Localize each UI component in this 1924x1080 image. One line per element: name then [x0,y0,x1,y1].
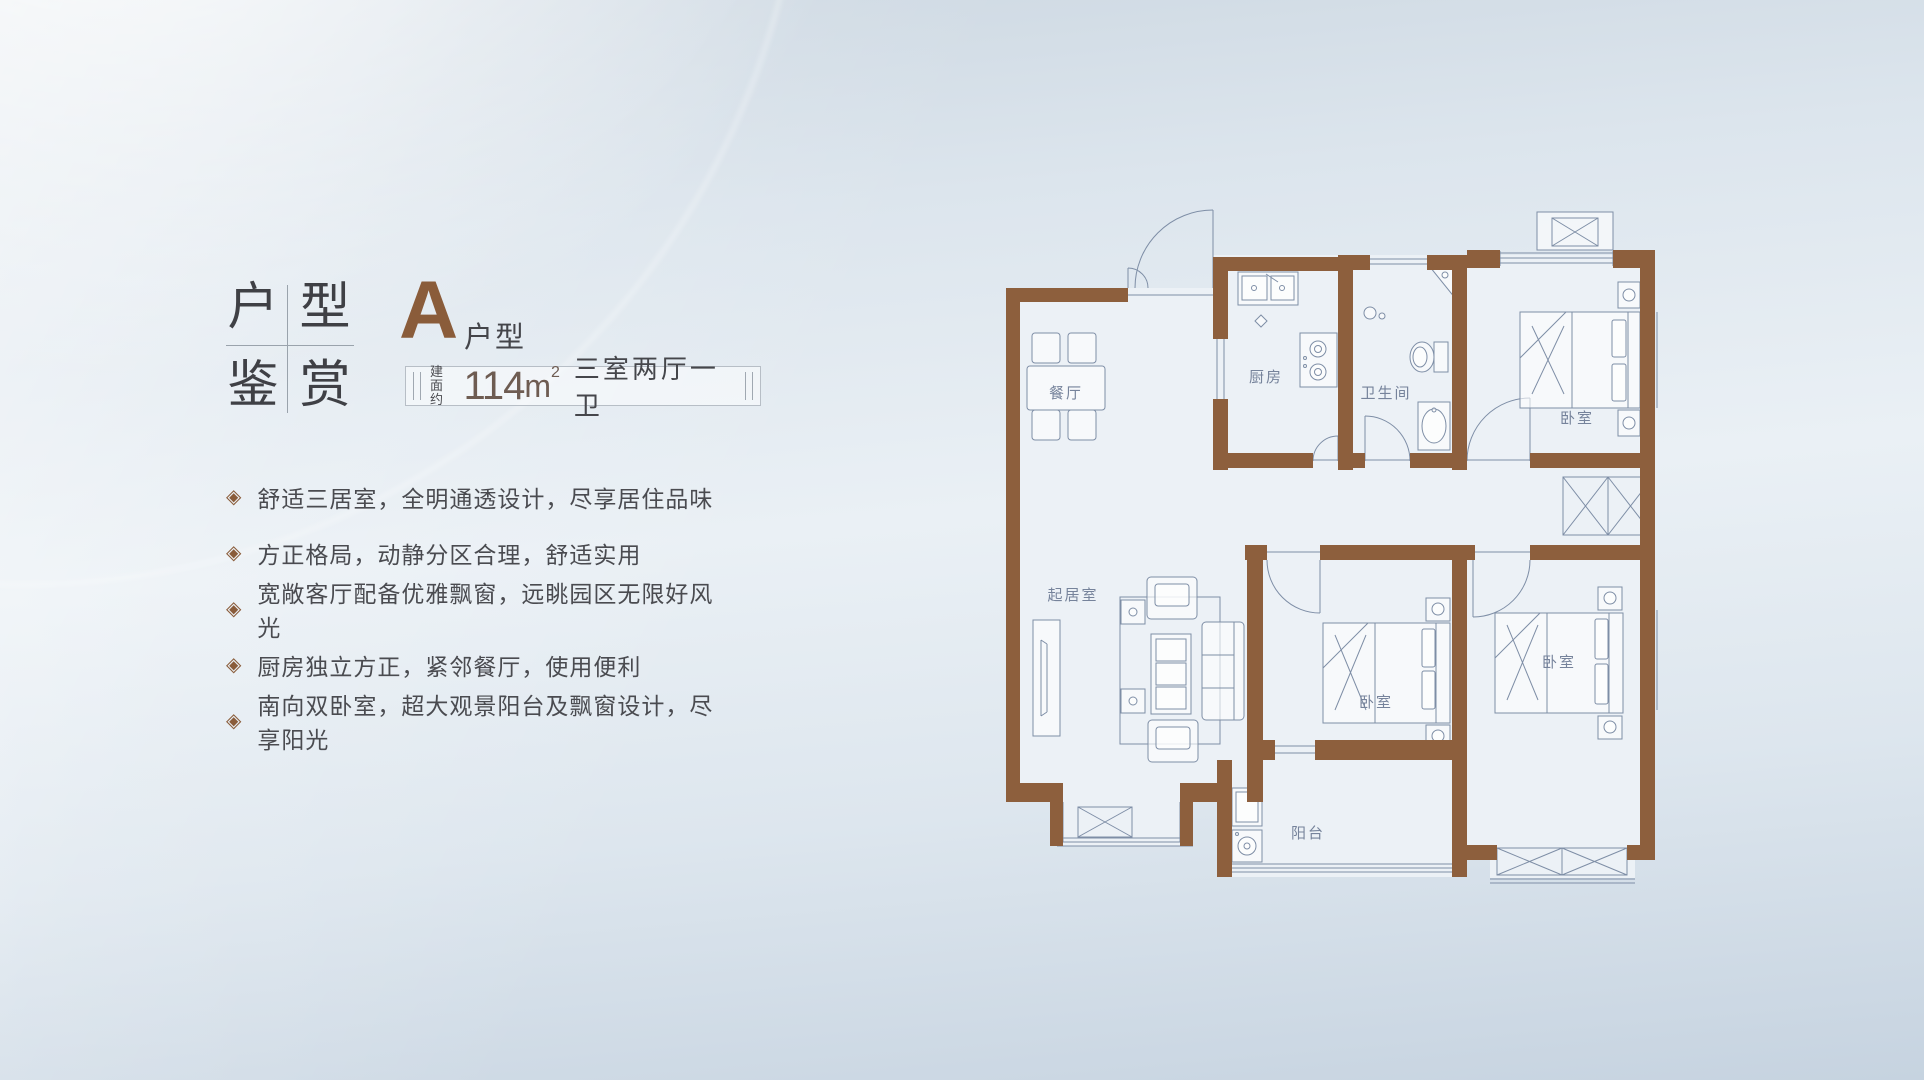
toilet [1434,342,1448,372]
feature-text: 舒适三居室，全明通透设计，尽享居住品味 [257,480,713,514]
room-label-bedroom-north: 卧室 [1560,410,1594,427]
room-label-bedroom-middle: 卧室 [1359,694,1393,711]
feature-item: ◈舒适三居室，全明通透设计，尽享居住品味 [226,482,716,512]
diamond-bullet-icon: ◈ [226,655,242,675]
title-char: 户 [226,281,280,335]
feature-text: 方正格局，动静分区合理，舒适实用 [257,536,641,570]
title-divider-horizontal [226,345,354,346]
diamond-bullet-icon: ◈ [226,487,242,507]
room-label-dining: 餐厅 [1049,385,1083,402]
feature-text: 宽敞客厅配备优雅飘窗，远眺园区无限好风光 [257,575,716,643]
feature-text: 厨房独立方正，紧邻餐厅，使用便利 [257,648,641,682]
floor-plan: 餐厅 厨房 卫生间 卧室 起居室 卧室 卧室 阳台 [830,170,1660,940]
ornament-right [745,372,753,400]
diamond-bullet-icon: ◈ [226,543,242,563]
diamond-bullet-icon: ◈ [226,711,242,731]
dining-chair [1068,333,1096,363]
sofa [1202,622,1244,720]
room-label-bedroom-south: 卧室 [1542,654,1576,671]
feature-text: 南向双卧室，超大观景阳台及飘窗设计，尽享阳光 [257,687,716,755]
feature-item: ◈厨房独立方正，紧邻餐厅，使用便利 [226,650,716,680]
poster: 户 型 鉴 赏 A 户型 建 面约 114 m 2 三室两厅一卫 ◈舒适三居室，… [0,0,1924,1080]
feature-item: ◈宽敞客厅配备优雅飘窗，远眺园区无限好风光 [226,594,716,624]
room-label-bathroom: 卫生间 [1360,385,1411,402]
feature-item: ◈南向双卧室，超大观景阳台及飘窗设计，尽享阳光 [226,706,716,736]
diamond-bullet-icon: ◈ [226,599,242,619]
area-prefix: 建 面约 [430,365,458,407]
feature-item: ◈方正格局，动静分区合理，舒适实用 [226,538,716,568]
title-divider-vertical [287,285,288,413]
title-char: 型 [298,281,352,335]
room-label-balcony: 阳台 [1291,825,1325,842]
area-unit: m [524,368,551,405]
layout-summary: 三室两厅一卫 [574,349,745,423]
unit-suffix: 户型 [464,314,526,356]
area-prefix-line2: 面约 [430,378,444,407]
area-badge: 建 面约 114 m 2 三室两厅一卫 [405,366,761,406]
area-value: 114 [464,366,525,406]
title-char: 赏 [298,359,352,413]
room-label-kitchen: 厨房 [1249,369,1283,386]
ornament-left [413,372,421,400]
feature-list: ◈舒适三居室，全明通透设计，尽享居住品味 ◈方正格局，动静分区合理，舒适实用 ◈… [226,482,716,762]
dining-chair [1032,410,1060,440]
area-prefix-line1: 建 [430,364,444,379]
page-title: 户 型 鉴 赏 [226,279,354,413]
room-label-living: 起居室 [1047,587,1098,604]
area-superscript: 2 [551,364,560,382]
dining-chair [1032,333,1060,363]
unit-letter: A [399,270,458,352]
dining-chair [1068,410,1096,440]
title-char: 鉴 [226,359,280,413]
